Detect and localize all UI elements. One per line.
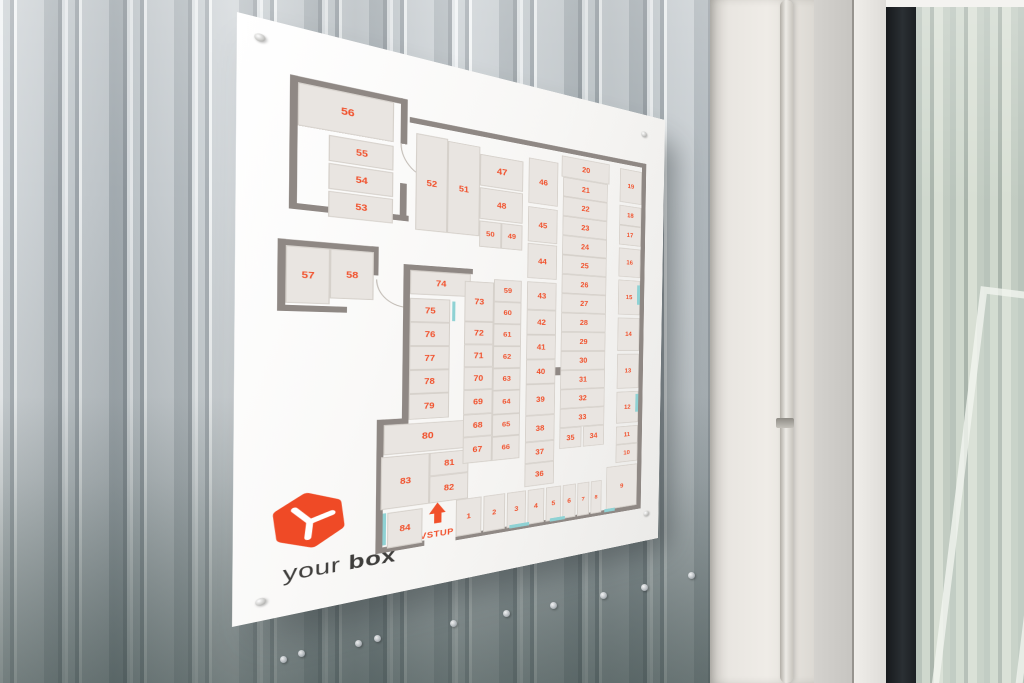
storage-unit-30: 30 <box>560 351 605 370</box>
storage-unit-48: 48 <box>479 187 523 224</box>
sign-screw <box>641 131 647 138</box>
unit-number: 17 <box>627 232 634 239</box>
unit-number: 31 <box>579 376 587 383</box>
wall-segment <box>400 183 407 221</box>
unit-number: 30 <box>579 357 587 364</box>
unit-number: 29 <box>580 338 588 345</box>
unit-number: 57 <box>301 270 314 280</box>
storage-unit-14: 14 <box>617 317 639 350</box>
storage-unit-16: 16 <box>618 247 640 278</box>
unit-number: 75 <box>425 306 436 315</box>
unit-number: 15 <box>626 294 633 300</box>
unit-number: 33 <box>578 413 586 421</box>
unit-number: 32 <box>579 394 587 401</box>
unit-number: 11 <box>624 432 630 439</box>
unit-number: 67 <box>472 445 482 454</box>
unit-number: 22 <box>582 205 590 213</box>
storage-unit-13: 13 <box>617 354 639 389</box>
unit-number: 59 <box>504 287 512 294</box>
storage-unit-58: 58 <box>330 249 374 300</box>
storage-unit-26: 26 <box>562 274 607 296</box>
storage-unit-77: 77 <box>409 346 450 370</box>
unit-number: 38 <box>536 424 545 432</box>
wall-screw <box>355 640 362 647</box>
unit-number: 71 <box>474 352 484 360</box>
unit-number: 79 <box>424 402 435 411</box>
storage-unit-72: 72 <box>464 321 494 344</box>
storage-unit-71: 71 <box>464 344 494 367</box>
unit-number: 76 <box>425 330 436 338</box>
unit-number: 43 <box>538 292 547 300</box>
unit-number: 68 <box>473 421 483 429</box>
unit-number: 27 <box>580 300 588 307</box>
sign-screw <box>255 597 266 607</box>
unit-number: 18 <box>627 213 634 220</box>
glass-reflection <box>928 286 1024 683</box>
unit-number: 74 <box>436 279 447 288</box>
unit-number: 2 <box>492 509 496 516</box>
unit-number: 44 <box>538 258 547 266</box>
storage-unit-40: 40 <box>526 359 556 384</box>
storage-unit-69: 69 <box>463 389 493 415</box>
unit-number: 28 <box>580 319 588 326</box>
storage-unit-8: 8 <box>590 480 601 514</box>
storage-unit-50: 50 <box>479 220 501 248</box>
unit-number: 51 <box>459 185 469 194</box>
sign-screw <box>254 32 265 43</box>
storage-unit-41: 41 <box>526 335 556 360</box>
unit-number: 53 <box>355 202 367 212</box>
unit-number: 42 <box>537 319 546 327</box>
glass-door-panel <box>916 0 1024 683</box>
sign-screw <box>643 510 649 516</box>
unit-number: 36 <box>535 470 544 478</box>
unit-number: 25 <box>581 262 589 270</box>
storage-unit-17: 17 <box>619 225 641 247</box>
storage-unit-42: 42 <box>526 310 556 335</box>
storage-unit-74: 74 <box>410 270 471 297</box>
storage-unit-35: 35 <box>559 426 581 449</box>
unit-number: 20 <box>582 166 590 175</box>
storage-unit-6: 6 <box>562 484 576 519</box>
entrance-arrow-shaft <box>434 513 441 524</box>
wall-screw <box>298 650 305 657</box>
unit-number: 34 <box>590 432 598 440</box>
unit-number: 69 <box>473 398 483 406</box>
unit-number: 60 <box>503 310 511 317</box>
storage-unit-43: 43 <box>527 281 557 310</box>
storage-unit-76: 76 <box>409 322 450 346</box>
unit-number: 49 <box>508 233 516 241</box>
unit-number: 8 <box>595 494 598 500</box>
storage-unit-75: 75 <box>410 298 451 323</box>
unit-number: 82 <box>444 483 454 492</box>
storage-unit-29: 29 <box>561 332 606 351</box>
unit-number: 52 <box>426 179 437 189</box>
storage-unit-51: 51 <box>447 141 480 236</box>
unit-number: 3 <box>514 505 518 512</box>
storage-unit-78: 78 <box>409 369 450 394</box>
unit-number: 73 <box>474 298 484 306</box>
unit-number: 9 <box>620 483 623 489</box>
door-jamb <box>852 0 888 683</box>
storage-unit-28: 28 <box>561 312 606 332</box>
your-box-icon <box>261 483 354 561</box>
unit-number: 64 <box>502 398 510 405</box>
unit-number: 58 <box>346 270 358 280</box>
unit-number: 39 <box>536 396 545 404</box>
unit-number: 1 <box>466 513 470 521</box>
unit-number: 80 <box>422 432 434 442</box>
door-frame <box>886 0 916 683</box>
storage-unit-79: 79 <box>408 392 449 419</box>
unit-number: 40 <box>536 368 545 376</box>
wall-screw <box>641 584 648 591</box>
unit-number: 26 <box>580 281 588 289</box>
storage-unit-34: 34 <box>583 425 604 447</box>
door-marker <box>452 301 455 321</box>
unit-number: 45 <box>539 221 548 229</box>
storage-unit-46: 46 <box>528 157 558 206</box>
storage-unit-38: 38 <box>525 414 555 442</box>
unit-number: 5 <box>551 500 555 507</box>
storage-unit-45: 45 <box>528 206 558 244</box>
conduit-pipe <box>780 0 793 683</box>
wall-screw <box>374 635 381 642</box>
top-trim <box>886 0 1024 7</box>
storage-unit-49: 49 <box>501 223 522 251</box>
unit-number: 62 <box>503 354 511 361</box>
unit-number: 61 <box>503 332 511 339</box>
wall-screw <box>688 572 695 579</box>
wall-screw <box>450 620 457 627</box>
unit-number: 12 <box>624 404 631 410</box>
unit-number: 35 <box>566 434 574 442</box>
storage-unit-1: 1 <box>456 496 482 536</box>
storage-unit-57: 57 <box>285 245 330 304</box>
unit-number: 41 <box>537 343 546 350</box>
storage-unit-66: 66 <box>492 435 520 461</box>
unit-number: 7 <box>582 496 585 502</box>
entrance-arrow-icon <box>429 501 446 514</box>
unit-number: 50 <box>486 231 495 239</box>
storage-unit-64: 64 <box>492 390 520 415</box>
floor-plan-sign: VSTUP 5655545357585251474850497475767778… <box>232 12 665 627</box>
pipe-bracket <box>776 418 794 428</box>
wall-screw <box>280 656 287 663</box>
unit-number: 54 <box>356 175 368 185</box>
unit-number: 48 <box>497 201 506 210</box>
unit-number: 16 <box>626 260 633 267</box>
storage-unit-36: 36 <box>524 461 554 487</box>
unit-number: 56 <box>341 107 355 119</box>
storage-unit-31: 31 <box>560 369 605 389</box>
storage-unit-60: 60 <box>493 301 521 324</box>
unit-number: 13 <box>625 368 632 374</box>
unit-number: 19 <box>628 183 635 190</box>
unit-number: 10 <box>623 449 630 456</box>
storage-unit-62: 62 <box>493 346 521 368</box>
photo-scene: VSTUP 5655545357585251474850497475767778… <box>0 0 1024 683</box>
plaster-wall <box>710 0 814 683</box>
unit-number: 14 <box>625 331 632 337</box>
unit-number: 24 <box>581 243 589 251</box>
storage-unit-47: 47 <box>480 154 524 192</box>
storage-unit-61: 61 <box>493 324 521 346</box>
wall-corner-strip <box>814 0 852 683</box>
unit-number: 72 <box>474 329 484 337</box>
storage-unit-68: 68 <box>463 413 493 438</box>
unit-number: 23 <box>581 224 589 232</box>
storage-unit-10: 10 <box>615 443 637 463</box>
wall-screw <box>550 602 557 609</box>
storage-unit-7: 7 <box>577 482 589 517</box>
door-marker <box>637 285 640 305</box>
storage-unit-9: 9 <box>606 463 637 509</box>
unit-number: 55 <box>356 148 368 159</box>
storage-unit-59: 59 <box>494 279 522 303</box>
unit-number: 47 <box>497 168 508 178</box>
wall-segment <box>401 98 408 144</box>
storage-unit-39: 39 <box>525 383 555 416</box>
storage-unit-65: 65 <box>492 413 520 437</box>
unit-number: 21 <box>582 186 590 194</box>
storage-unit-27: 27 <box>561 293 606 314</box>
unit-number: 37 <box>535 448 544 456</box>
unit-number: 63 <box>503 376 511 383</box>
storage-unit-52: 52 <box>415 133 448 233</box>
unit-number: 65 <box>502 421 510 428</box>
storage-unit-70: 70 <box>463 367 493 390</box>
storage-unit-67: 67 <box>462 435 492 464</box>
storage-unit-73: 73 <box>464 281 494 322</box>
unit-number: 6 <box>567 498 571 505</box>
wall-segment <box>289 74 298 209</box>
unit-number: 4 <box>534 503 538 510</box>
unit-number: 81 <box>444 458 454 467</box>
storage-unit-19: 19 <box>620 168 642 205</box>
door-marker <box>635 394 638 412</box>
unit-number: 46 <box>539 178 548 187</box>
unit-number: 70 <box>473 374 483 382</box>
storage-unit-2: 2 <box>483 493 505 532</box>
storage-unit-18: 18 <box>619 205 641 228</box>
storage-unit-4: 4 <box>527 488 544 525</box>
storage-unit-44: 44 <box>527 243 557 280</box>
wall-segment <box>277 305 347 313</box>
unit-number: 77 <box>424 354 435 362</box>
storage-unit-63: 63 <box>493 368 521 391</box>
wall-screw <box>600 592 607 599</box>
unit-number: 66 <box>502 444 510 452</box>
wall-screw <box>503 610 510 617</box>
unit-number: 78 <box>424 377 435 385</box>
